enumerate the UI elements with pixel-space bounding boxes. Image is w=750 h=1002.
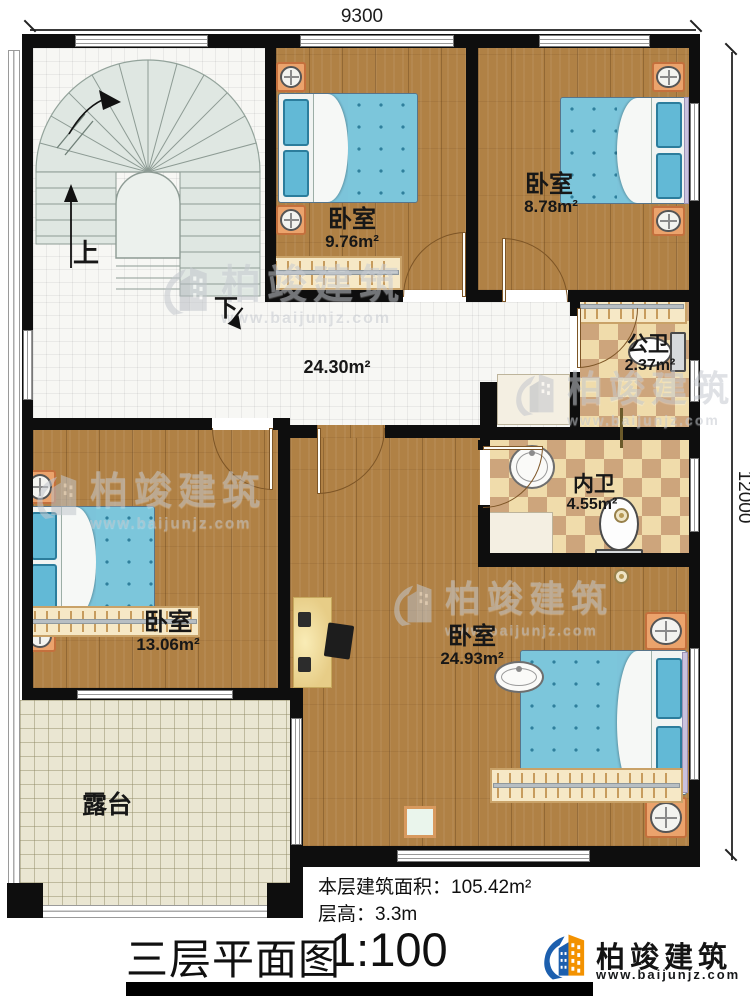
- wall-bedroom1-bedroom2: [466, 48, 478, 302]
- nightstand: [652, 206, 685, 236]
- wall-stair-bedroom1: [265, 48, 276, 302]
- door-leaf-bedroom1: [462, 232, 466, 297]
- window-bottom-master: [397, 850, 590, 862]
- tv-icon: [324, 622, 354, 659]
- dimension-line-top: [30, 29, 696, 31]
- speaker-icon: [298, 657, 311, 672]
- pillow: [31, 512, 57, 560]
- shower-knob-icon: [614, 569, 629, 584]
- nightstand: [276, 205, 306, 235]
- room-area-master: 24.93m²: [440, 650, 503, 668]
- window-top-bedroom1: [300, 35, 454, 47]
- room-area-bedroom3: 13.06m²: [136, 636, 199, 654]
- door-leaf-master: [317, 428, 321, 494]
- bed-headboard: [279, 94, 314, 202]
- wardrobe-bedroom1: [268, 256, 402, 290]
- room-label-publicbath: 公卫: [627, 334, 669, 356]
- floor-area-line: 本层建筑面积：105.42m²: [318, 872, 531, 899]
- room-label-bedroom3: 卧室: [144, 610, 192, 635]
- room-area-bedroom2: 8.78m²: [524, 198, 578, 216]
- nightstand: [645, 612, 687, 650]
- window-bedroom3-terrace: [77, 690, 233, 699]
- wall-publicbath-west-lower: [570, 372, 580, 427]
- speaker-icon: [298, 612, 311, 627]
- lamp-icon: [656, 66, 681, 89]
- terrace-column-left: [7, 883, 43, 918]
- shower-pipe: [620, 408, 623, 448]
- wall-hall-south-a: [22, 418, 212, 430]
- wall-bedroom3-master: [278, 430, 290, 688]
- bed-bedroom2: [560, 97, 687, 204]
- washbasin-counter: [487, 512, 553, 556]
- wall-bedroom2-south-right: [568, 290, 700, 302]
- bed-headboard: [651, 98, 686, 203]
- lamp-icon: [656, 210, 681, 233]
- mattress: [96, 507, 154, 617]
- room-area-bedroom1: 9.76m²: [325, 233, 379, 251]
- wardrobe-master: [490, 768, 683, 803]
- dimension-right-value: 12000: [733, 453, 750, 541]
- nightstand: [645, 797, 687, 838]
- room-area-ensuite: 4.55m²: [567, 497, 618, 514]
- pillow: [656, 102, 682, 148]
- wall-ensuite-west-lower: [478, 505, 490, 555]
- terrace-floor: [20, 700, 290, 905]
- hallway-area: 24.30m²: [303, 358, 370, 377]
- lamp-icon: [280, 209, 303, 232]
- title-underline-bar: [126, 982, 593, 996]
- pillow: [283, 99, 309, 146]
- room-label-bedroom1: 卧室: [328, 207, 376, 232]
- window-top-stairwell: [75, 35, 208, 47]
- door-leaf-bedroom3: [269, 428, 273, 490]
- blanket: [314, 94, 348, 202]
- pillow: [656, 153, 682, 199]
- floor-plan-canvas: 9300 12000: [0, 0, 750, 1002]
- pillow: [283, 150, 309, 197]
- window-right-publicbath: [690, 360, 699, 402]
- lamp-icon: [650, 802, 681, 833]
- plan-title: 三层平面图: [126, 926, 341, 987]
- nightstand: [652, 62, 685, 92]
- window-terrace-master: [291, 718, 302, 845]
- window-right-bedroom2: [690, 103, 699, 201]
- room-label-master: 卧室: [448, 624, 496, 649]
- window-right-ensuite: [690, 458, 699, 532]
- room-label-terrace: 露台: [82, 792, 132, 818]
- window-right-master: [690, 648, 699, 780]
- floor-area-value: 105.42m²: [451, 877, 531, 898]
- room-label-bedroom2: 卧室: [525, 172, 573, 197]
- hallway-floor: [33, 302, 290, 418]
- plan-scale: 1:100: [330, 922, 448, 977]
- washbasin-counter: [497, 374, 570, 425]
- wall-hall-south-b: [273, 418, 290, 430]
- nightstand: [276, 62, 306, 92]
- window-top-bedroom2: [539, 35, 650, 47]
- wall-bedroom2-south-left: [478, 290, 504, 302]
- door-leaf-ensuite: [483, 446, 543, 450]
- dimension-top-value: 9300: [341, 6, 383, 28]
- lamp-icon: [650, 617, 681, 645]
- side-table: [404, 806, 436, 838]
- blanket: [617, 98, 651, 203]
- window-left-hallway: [23, 330, 33, 400]
- door-leaf-bedroom2: [502, 238, 506, 302]
- railing-terrace-bottom: [8, 905, 303, 918]
- wall-bath-divider: [480, 427, 700, 440]
- floor-area-label: 本层建筑面积：: [318, 877, 451, 898]
- brand-logo-icon: [543, 930, 590, 982]
- pillow: [656, 658, 682, 719]
- terrace-column-right: [267, 883, 303, 918]
- wall-hall-south-d: [385, 425, 480, 438]
- brand-url: www.baijunjz.com: [596, 967, 740, 982]
- staircase: [33, 48, 265, 298]
- wall-ensuite-south: [478, 553, 700, 567]
- bed-bedroom3: [26, 506, 155, 618]
- bed-bedroom1: [278, 93, 418, 203]
- wall-bedroom1-south: [265, 290, 403, 302]
- room-area-publicbath: 2.37m²: [625, 358, 676, 375]
- stair-up-label: 上: [73, 240, 99, 267]
- railing-left: [8, 50, 20, 905]
- wall-hall-south-c: [290, 425, 317, 438]
- room-label-ensuite: 内卫: [573, 474, 615, 496]
- lamp-icon: [280, 66, 303, 89]
- door-leaf-publicbath: [577, 308, 581, 368]
- blanket: [62, 507, 96, 617]
- mattress: [348, 94, 417, 202]
- wall-alcove-stub: [480, 382, 497, 427]
